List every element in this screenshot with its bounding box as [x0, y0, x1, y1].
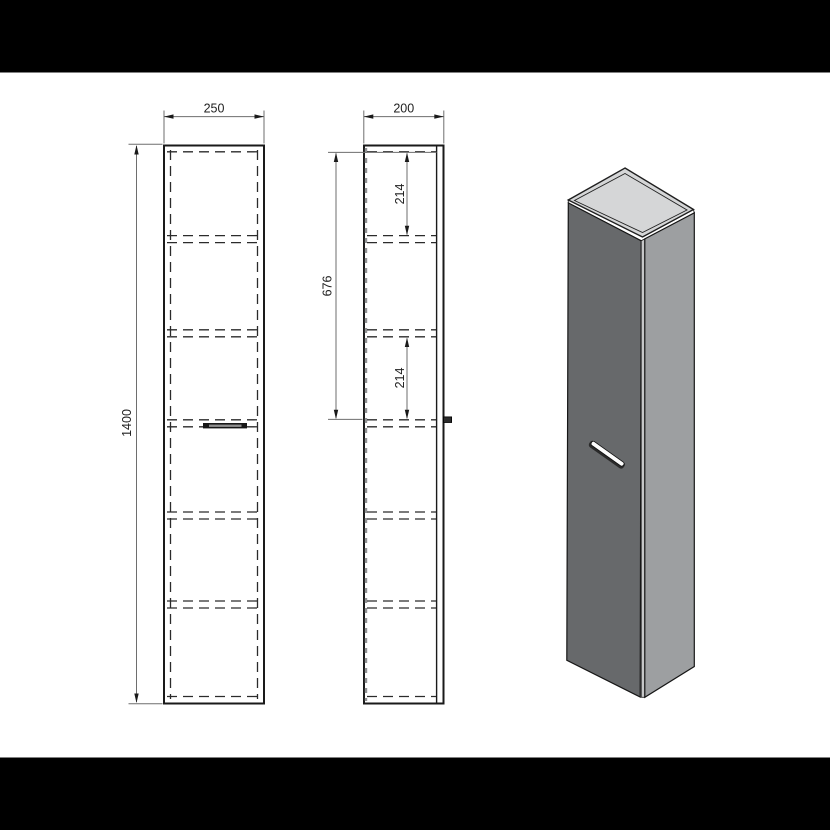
- front-view: 250 1400: [120, 102, 264, 704]
- side-face: [645, 213, 695, 697]
- side-214-middle-dim-label: 214: [393, 368, 407, 389]
- side-depth-dim-label: 200: [393, 102, 414, 116]
- front-height-dimension: 1400: [120, 144, 163, 703]
- front-height-dim-label: 1400: [120, 409, 134, 437]
- side-214-middle-dimension: 214: [393, 338, 409, 420]
- front-width-dimension: 250: [164, 102, 264, 144]
- technical-drawing-page: 250 1400: [0, 0, 830, 830]
- side-depth-dimension: 200: [364, 102, 444, 144]
- dim-arrow-down: [405, 226, 409, 236]
- front-door-handle: [203, 423, 247, 428]
- cabinet-technical-drawing: 250 1400: [0, 0, 830, 830]
- side-214-top-dim-label: 214: [393, 184, 407, 205]
- dim-arrow-up: [134, 145, 138, 155]
- cabinet-3d-render: [567, 168, 695, 697]
- dim-arrow-up: [405, 338, 409, 348]
- dim-arrow-left: [164, 114, 174, 118]
- dim-arrow-right: [255, 114, 265, 118]
- side-shelf-hidden-lines: [367, 236, 436, 608]
- side-door-handle: [444, 417, 452, 423]
- letterbox-bottom-bar: [0, 758, 830, 830]
- dim-arrow-up: [334, 153, 338, 163]
- letterbox-top-bar: [0, 0, 830, 73]
- side-view-outline: [364, 146, 444, 704]
- side-676-dim-label: 676: [321, 276, 335, 297]
- dim-arrow-left: [364, 114, 374, 118]
- dim-arrow-up: [405, 153, 409, 163]
- front-width-dim-label: 250: [204, 102, 225, 116]
- side-view: 200 676 214 214: [321, 102, 452, 704]
- side-676-dimension: 676: [321, 152, 437, 419]
- front-shelf-hidden-lines: [167, 236, 261, 608]
- dim-arrow-down: [134, 694, 138, 704]
- dim-arrow-right: [434, 114, 444, 118]
- dim-arrow-down: [334, 410, 338, 420]
- dim-arrow-down: [405, 410, 409, 420]
- side-214-top-dimension: 214: [393, 153, 409, 236]
